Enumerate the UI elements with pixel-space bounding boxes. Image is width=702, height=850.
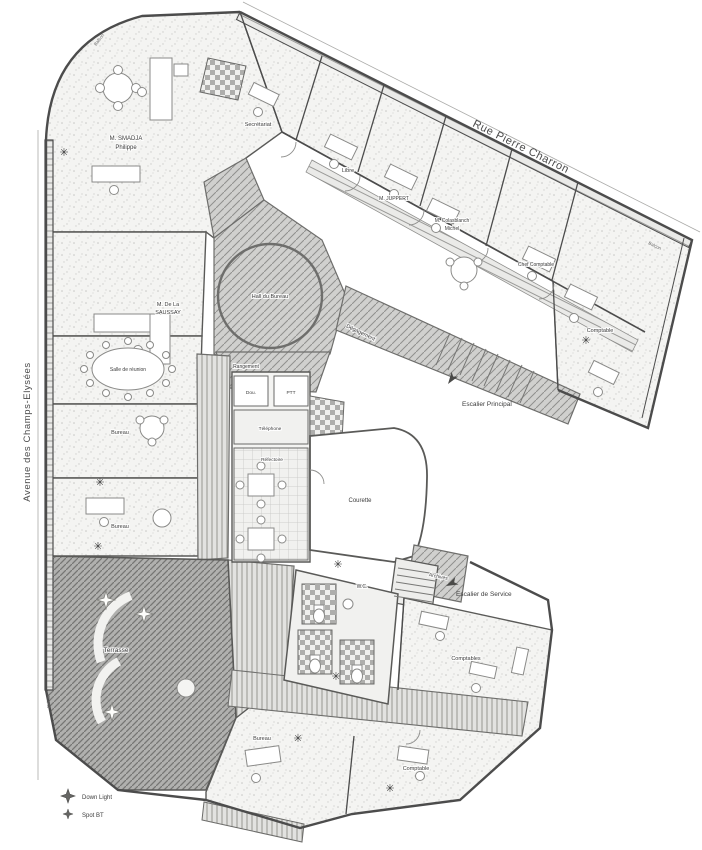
toilet-icon xyxy=(314,605,325,623)
chair xyxy=(114,66,123,75)
smadja-label-1: M. SMADJA xyxy=(110,136,143,142)
corridor-band xyxy=(336,286,580,424)
smadja-label-2: Philippe xyxy=(115,145,137,151)
chair xyxy=(474,258,482,266)
chair xyxy=(254,108,263,117)
spot-star-icon xyxy=(63,809,73,819)
chair xyxy=(236,535,244,543)
refectoire-table xyxy=(248,528,274,550)
saussay-label-1: M. De La xyxy=(157,302,180,308)
washbasin-icon xyxy=(343,599,353,609)
chair xyxy=(594,388,603,397)
chair xyxy=(252,774,261,783)
chef-comptable-label: Chef Comptable xyxy=(518,262,554,268)
chair xyxy=(96,84,105,93)
plant-icon: ✳ xyxy=(385,783,394,795)
comptable-est-label: Comptable xyxy=(587,328,614,334)
colas-label-2: Michel xyxy=(445,226,459,232)
salle-reunion-label: Salle de réunion xyxy=(110,367,146,373)
floor-plan: Rue Pierre Charron Avenue des Champs-Ely… xyxy=(0,0,702,850)
chair xyxy=(257,500,265,508)
chair xyxy=(432,224,441,233)
bureau-ouest-1-label: Bureau xyxy=(111,430,129,436)
desk xyxy=(94,314,156,332)
courette xyxy=(310,428,427,562)
hall-label: Hall du Bureau xyxy=(252,294,288,300)
chair xyxy=(136,416,144,424)
desk xyxy=(86,498,124,514)
room-bureau-ouest-1 xyxy=(46,404,200,478)
refectoire-label: Réfectoire xyxy=(261,457,283,463)
telephone-label: Téléphone xyxy=(259,426,282,432)
round-table xyxy=(103,73,133,103)
chair xyxy=(114,102,123,111)
chair xyxy=(278,535,286,543)
round-table xyxy=(153,509,171,527)
kitchenette-tile xyxy=(200,58,246,100)
refectoire-table xyxy=(248,474,274,496)
chair xyxy=(278,481,286,489)
wc-label: W.C. xyxy=(357,584,368,590)
chair xyxy=(160,416,168,424)
plant-icon: ✳ xyxy=(293,733,302,745)
down-light-star-icon xyxy=(61,789,75,803)
comptables-label: Comptables xyxy=(451,656,481,662)
room-bureau-ouest-2 xyxy=(46,478,199,556)
desk-return xyxy=(174,64,188,76)
plant-icon: ✳ xyxy=(93,541,102,553)
chair xyxy=(570,314,579,323)
chair xyxy=(446,258,454,266)
saussay-label-2: SAUSSAY xyxy=(155,310,181,316)
door-arc xyxy=(281,142,296,157)
terrace-table xyxy=(177,679,195,697)
chair xyxy=(472,684,481,693)
escalier-service-label: Escalier de Service xyxy=(456,591,512,598)
courette-label: Courette xyxy=(348,498,372,504)
chair xyxy=(416,772,425,781)
chair xyxy=(436,632,445,641)
chair xyxy=(460,282,468,290)
rangement-label: Rangement xyxy=(233,364,259,370)
round-table xyxy=(451,257,477,283)
bureau-ouest-2-label: Bureau xyxy=(111,524,129,530)
legend-spot-label: Spot BT xyxy=(82,813,104,819)
juppert-label: M. JUPPERT xyxy=(379,196,409,202)
plant-icon: ✳ xyxy=(333,559,342,571)
plant-icon: ✳ xyxy=(581,335,590,347)
bureau-sud-label: Bureau xyxy=(253,736,271,742)
desk xyxy=(150,58,172,120)
terrasse-label: Terrasse xyxy=(104,647,129,654)
balcon-ouest-label: Balcon xyxy=(46,694,51,708)
toilet-icon xyxy=(310,655,321,673)
chair xyxy=(236,481,244,489)
gallery-north xyxy=(197,354,230,560)
comptable-sud-label: Comptable xyxy=(403,766,430,772)
chair xyxy=(110,186,119,195)
chair xyxy=(138,88,147,97)
colas-label-1: M. Colasblanch xyxy=(435,218,470,224)
chair xyxy=(148,438,156,446)
chair xyxy=(100,518,109,527)
desk xyxy=(92,166,140,182)
legend-down-light-label: Down Light xyxy=(82,795,112,801)
chair xyxy=(257,462,265,470)
plant-icon: ✳ xyxy=(59,147,68,159)
chair xyxy=(257,554,265,562)
chair xyxy=(257,516,265,524)
legend: Down Light Spot BT xyxy=(61,789,112,819)
floor-plan-page: Rue Pierre Charron Avenue des Champs-Ely… xyxy=(0,0,702,850)
chair xyxy=(330,160,339,169)
plant-icon: ✳ xyxy=(95,477,104,489)
douche-label: Dou. xyxy=(246,390,256,396)
street-label-champs-elysees: Avenue des Champs-Elysées xyxy=(22,362,33,501)
toilet-icon xyxy=(352,665,363,683)
secretariat-label: Secrétariat xyxy=(245,122,272,128)
escalier-principal-label: Escalier Principal xyxy=(462,401,512,408)
ptt-label: PTT xyxy=(286,390,295,396)
chair xyxy=(528,272,537,281)
plant-icon: ✳ xyxy=(331,671,340,683)
libre-label: Libre xyxy=(342,168,354,174)
